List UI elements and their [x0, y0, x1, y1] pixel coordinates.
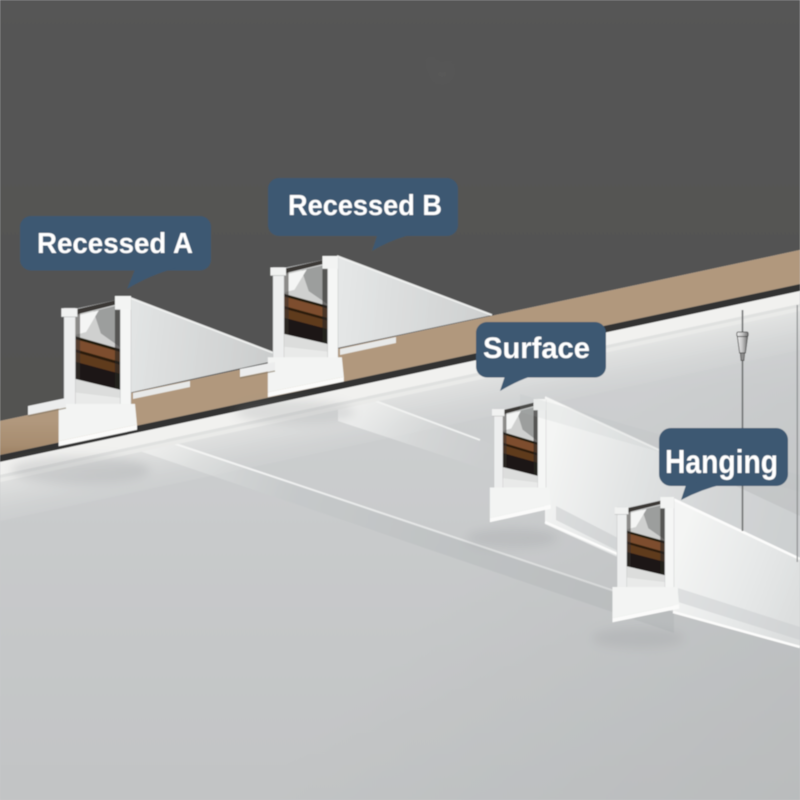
svg-text:Recessed B: Recessed B	[288, 190, 442, 222]
svg-text:Surface: Surface	[483, 332, 590, 365]
svg-text:Recessed A: Recessed A	[37, 228, 193, 260]
svg-text:Hanging: Hanging	[665, 443, 778, 480]
